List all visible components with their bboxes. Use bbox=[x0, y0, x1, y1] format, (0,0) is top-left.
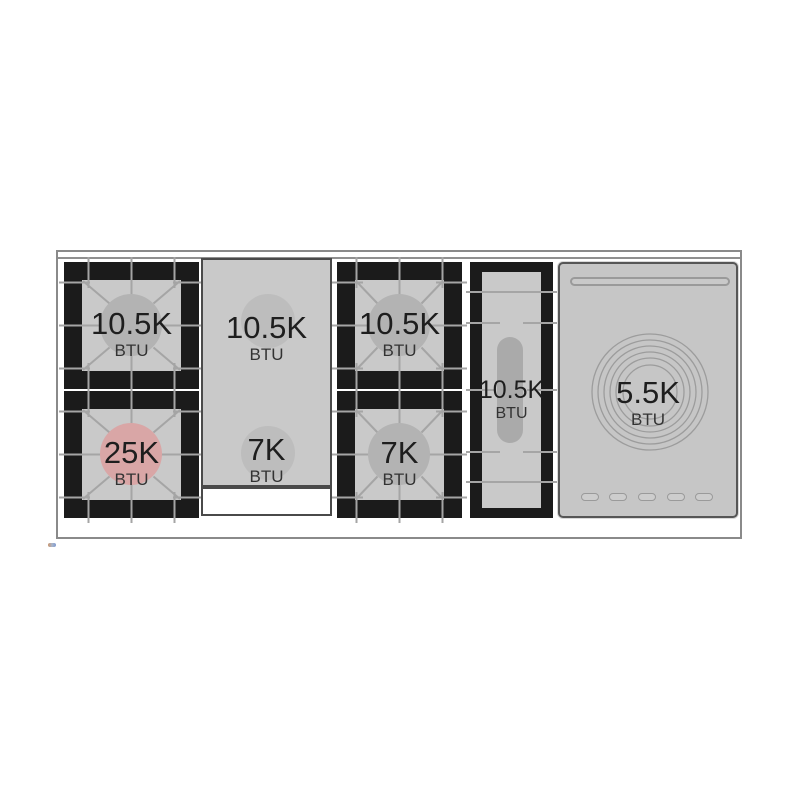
griddle-front-strip bbox=[201, 487, 332, 516]
vent-slot-icon bbox=[667, 493, 685, 501]
vent-slot-icon bbox=[695, 493, 713, 501]
burner-left-rear: 10.5K BTU bbox=[64, 262, 199, 389]
burner-center-rear: 10.5K BTU bbox=[337, 262, 462, 389]
burner-flame-circle-icon bbox=[368, 423, 430, 485]
burner-center-front: 7K BTU bbox=[337, 391, 462, 518]
cooktop-btu-diagram: 10.5K BTU 25K BTU 10.5K BTU 7K BTU 10.5K… bbox=[0, 0, 800, 800]
panel-handle-icon bbox=[570, 277, 730, 286]
burner-left-front: 25K BTU bbox=[64, 391, 199, 518]
cooktop-back-rail bbox=[58, 252, 740, 259]
burner-oval-zone: 10.5K BTU bbox=[470, 262, 553, 518]
vent-slot-icon bbox=[638, 493, 656, 501]
scan-artifact-dot bbox=[48, 543, 56, 547]
griddle-rear-burner-circle-icon bbox=[241, 294, 295, 348]
simmer-plate-zone: 5.5K BTU bbox=[558, 262, 738, 518]
burner-flame-circle-icon bbox=[100, 294, 162, 356]
griddle-zone: 10.5K BTU 7K BTU bbox=[201, 258, 332, 487]
simmer-rings-icon bbox=[585, 327, 715, 457]
vent-slot-icon bbox=[581, 493, 599, 501]
burner-flame-circle-icon bbox=[368, 294, 430, 356]
vent-slot-icon bbox=[609, 493, 627, 501]
griddle-front-burner-circle-icon bbox=[241, 426, 295, 480]
burner-highlight-circle-icon bbox=[100, 423, 162, 485]
oval-burner-icon bbox=[497, 337, 523, 443]
